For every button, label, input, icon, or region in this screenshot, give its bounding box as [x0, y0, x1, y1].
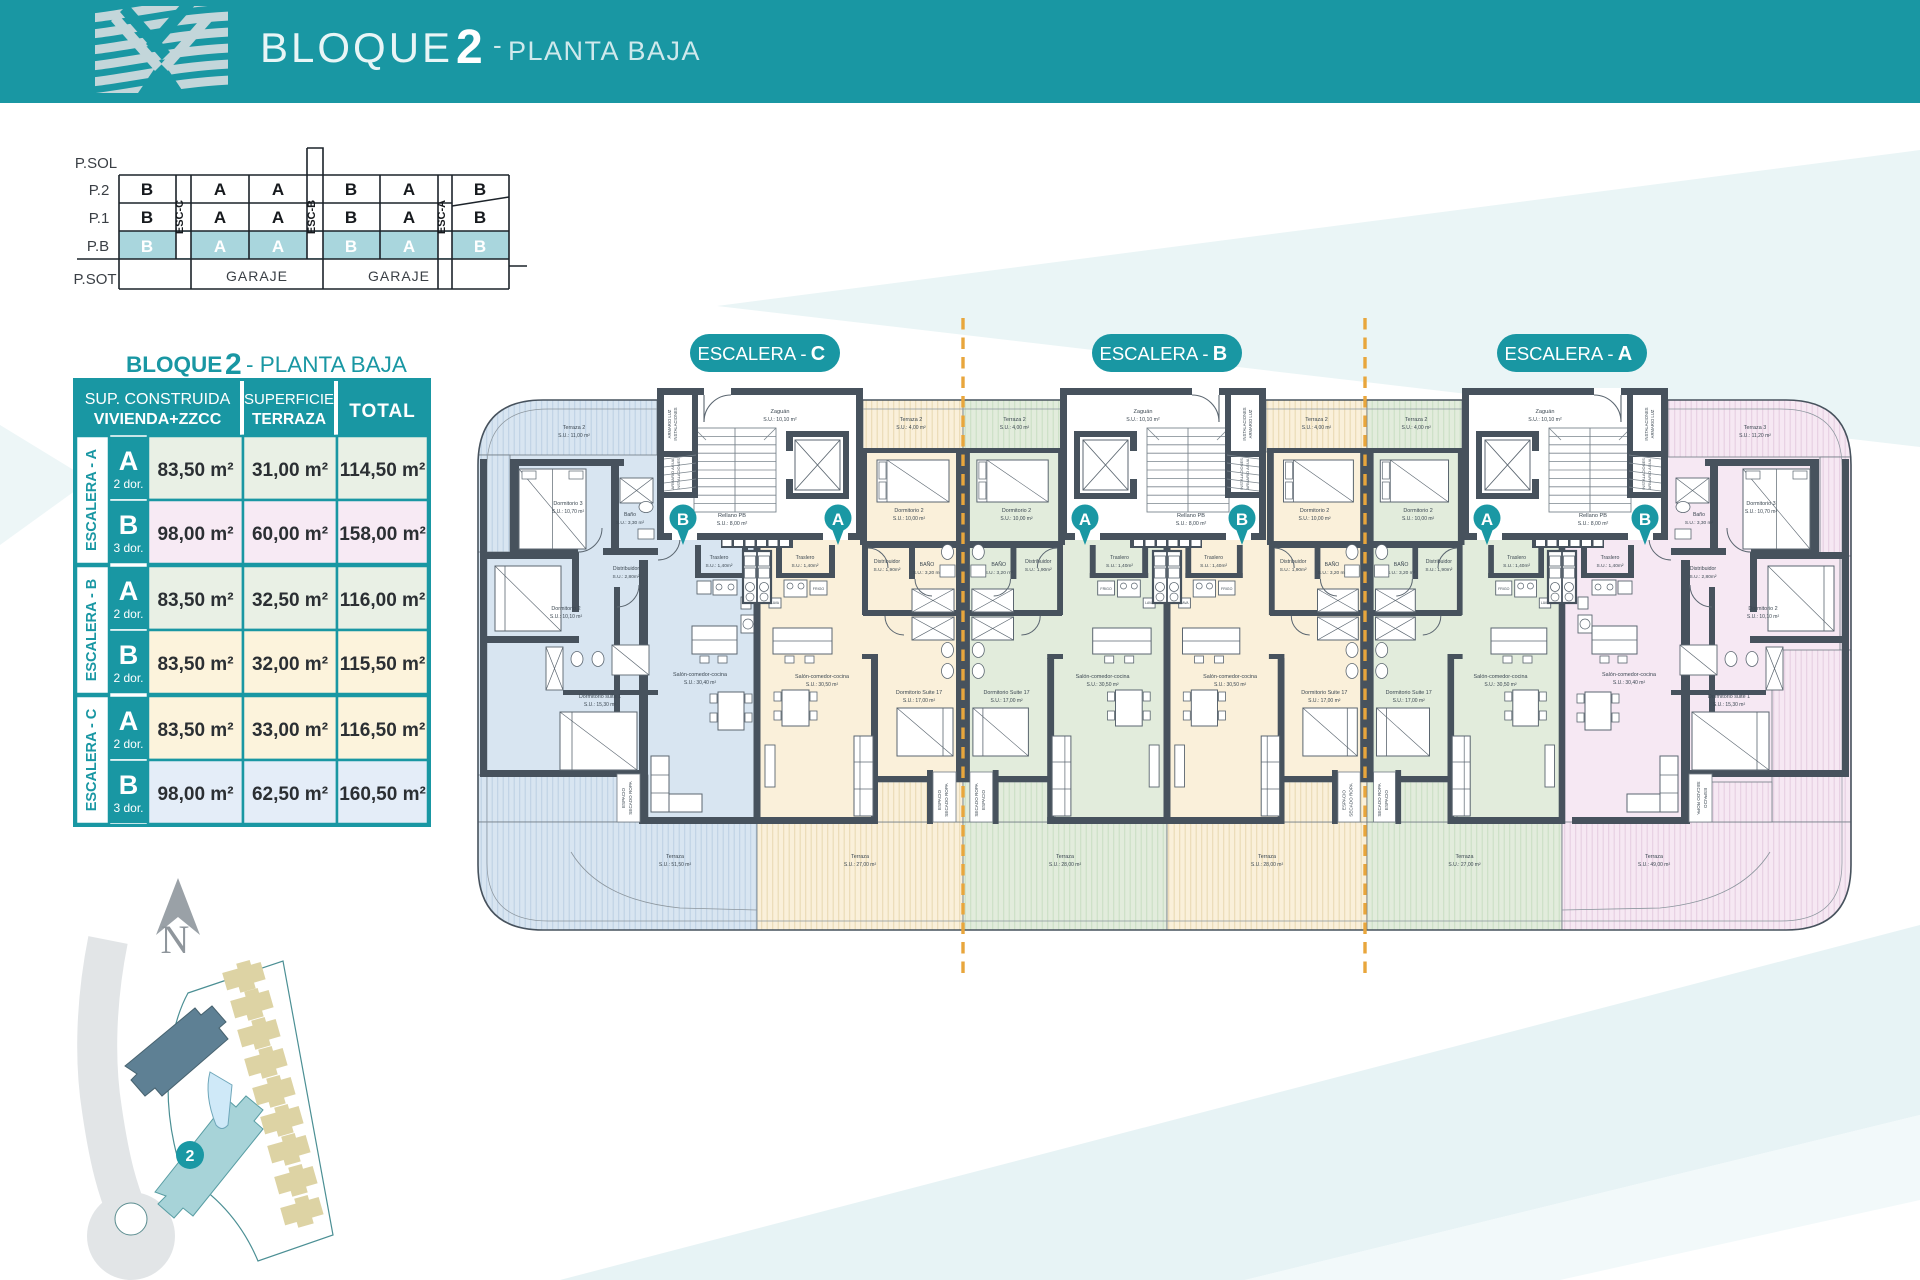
svg-text:A: A: [272, 237, 284, 256]
svg-text:S.U.: 3,20 m²: S.U.: 3,20 m²: [913, 570, 942, 576]
svg-text:A: A: [1079, 510, 1091, 529]
svg-text:PLANTA BAJA: PLANTA BAJA: [508, 36, 701, 66]
svg-text:114,50 m²: 114,50 m²: [340, 460, 426, 481]
svg-text:S.U.: 10,00 m²: S.U.: 10,00 m²: [1000, 516, 1033, 522]
svg-text:INSTALACIONES: INSTALACIONES: [1641, 458, 1646, 490]
svg-text:S.U.: 28,00 m²: S.U.: 28,00 m²: [1049, 862, 1082, 868]
svg-text:S.U.: 10,10 m²: S.U.: 10,10 m²: [1747, 614, 1780, 620]
svg-text:SECADO ROPA: SECADO ROPA: [1696, 781, 1701, 815]
svg-text:Dormitorio 2: Dormitorio 2: [551, 606, 580, 612]
svg-text:S.U.: 10,10 m²: S.U.: 10,10 m²: [1528, 417, 1562, 423]
svg-text:S.U.: 8,00 m²: S.U.: 8,00 m²: [717, 521, 748, 527]
svg-text:S.U.: 1,40m²: S.U.: 1,40m²: [706, 563, 733, 569]
svg-text:S.U.: 8,00 m²: S.U.: 8,00 m²: [1176, 521, 1207, 527]
svg-text:FRIGO: FRIGO: [1221, 587, 1233, 591]
svg-text:S.U.: 10,00 m²: S.U.: 10,00 m²: [893, 516, 926, 522]
svg-text:Dormitorio Suite 17: Dormitorio Suite 17: [1301, 690, 1347, 696]
svg-text:A: A: [119, 446, 139, 476]
svg-text:P.SOT: P.SOT: [73, 271, 116, 288]
svg-text:-: -: [493, 30, 502, 60]
svg-text:Dormitorio 3: Dormitorio 3: [1746, 501, 1775, 507]
svg-text:SECADO ROPA: SECADO ROPA: [628, 780, 633, 814]
svg-text:S.U.: 51,50 m²: S.U.: 51,50 m²: [659, 862, 692, 868]
svg-text:S.U.: 3,20 m²: S.U.: 3,20 m²: [1387, 570, 1416, 576]
svg-text:Terraza 2: Terraza 2: [1405, 417, 1427, 423]
svg-text:Traslero: Traslero: [1507, 555, 1526, 561]
svg-text:BAÑO: BAÑO: [991, 561, 1006, 568]
svg-text:ESPACIO: ESPACIO: [937, 790, 942, 811]
svg-text:S.U.: 2,80m²: S.U.: 2,80m²: [613, 574, 640, 580]
svg-text:B: B: [1236, 510, 1248, 529]
svg-text:FRIGO: FRIGO: [1100, 587, 1112, 591]
svg-text:Terraza 3: Terraza 3: [1744, 425, 1766, 431]
svg-text:83,50 m²: 83,50 m²: [157, 720, 233, 741]
svg-text:Salón-comedor-cocina: Salón-comedor-cocina: [1602, 672, 1656, 678]
svg-text:B: B: [345, 237, 357, 256]
svg-text:VIVIENDA+ZZCC: VIVIENDA+ZZCC: [94, 411, 222, 428]
svg-text:S.U.: 3,20 m²: S.U.: 3,20 m²: [1318, 570, 1347, 576]
svg-text:S.U.: 30,50 m²: S.U.: 30,50 m²: [1214, 682, 1247, 688]
svg-text:Salón-comedor-cocina: Salón-comedor-cocina: [1076, 674, 1130, 680]
svg-text:B: B: [474, 208, 486, 227]
svg-text:Zaguán: Zaguán: [1134, 409, 1153, 415]
svg-text:Traslero: Traslero: [1204, 555, 1223, 561]
svg-text:S.U.: 30,40 m²: S.U.: 30,40 m²: [684, 680, 717, 686]
svg-text:33,00 m²: 33,00 m²: [252, 720, 328, 741]
svg-text:ESPACIO: ESPACIO: [1342, 790, 1347, 811]
svg-text:A: A: [1618, 343, 1632, 365]
svg-text:INSTALACIONES: INSTALACIONES: [673, 407, 678, 440]
svg-text:S.U.: 4,00 m²: S.U.: 4,00 m²: [1000, 425, 1030, 431]
svg-text:P.1: P.1: [89, 210, 110, 227]
svg-text:Traslero: Traslero: [1110, 555, 1129, 561]
svg-text:ESCALERA -: ESCALERA -: [1100, 343, 1209, 364]
svg-text:160,50 m²: 160,50 m²: [339, 784, 426, 805]
svg-text:INSTALACIONES: INSTALACIONES: [1242, 407, 1247, 440]
svg-text:INSTALACIONES: INSTALACIONES: [1239, 458, 1244, 490]
svg-text:ESCALERA - C: ESCALERA - C: [84, 708, 100, 811]
svg-text:ESC-B: ESC-B: [306, 200, 318, 234]
svg-text:B: B: [1639, 510, 1651, 529]
svg-text:A: A: [832, 510, 844, 529]
svg-text:60,00 m²: 60,00 m²: [252, 524, 328, 545]
svg-text:62,50 m²: 62,50 m²: [252, 784, 328, 805]
svg-text:A: A: [403, 180, 415, 199]
svg-text:ARMARIO LUZ: ARMARIO LUZ: [1248, 409, 1253, 438]
svg-text:S.U.: 17,00 m²: S.U.: 17,00 m²: [990, 698, 1023, 704]
svg-text:S.U.: 10,10 m²: S.U.: 10,10 m²: [763, 417, 797, 423]
svg-text:S.U.: 11,00 m²: S.U.: 11,00 m²: [558, 433, 590, 439]
svg-text:LAVA: LAVA: [771, 601, 780, 605]
svg-text:S.U.: 15,30 m²: S.U.: 15,30 m²: [1713, 702, 1746, 708]
svg-text:2 dor.: 2 dor.: [113, 671, 143, 685]
svg-text:2: 2: [225, 348, 242, 381]
svg-text:ESCALERA - A: ESCALERA - A: [84, 448, 100, 551]
svg-text:A: A: [214, 180, 226, 199]
svg-text:ESC-A: ESC-A: [436, 200, 448, 234]
svg-text:B: B: [677, 510, 689, 529]
svg-text:P.B: P.B: [87, 238, 109, 255]
svg-text:Distribuidor: Distribuidor: [1690, 566, 1717, 572]
svg-text:Terraza: Terraza: [851, 854, 869, 860]
svg-text:S.U.: 30,50 m²: S.U.: 30,50 m²: [806, 682, 839, 688]
svg-text:INSTALACIONES: INSTALACIONES: [1644, 407, 1649, 440]
svg-text:Rellano PB: Rellano PB: [718, 513, 746, 519]
svg-text:Salón-comedor-cocina: Salón-comedor-cocina: [1474, 674, 1528, 680]
svg-text:83,50 m²: 83,50 m²: [157, 590, 233, 611]
svg-text:TERRAZA: TERRAZA: [252, 411, 326, 428]
svg-text:S.U.: 1,90m²: S.U.: 1,90m²: [874, 567, 901, 573]
svg-text:98,00 m²: 98,00 m²: [157, 784, 233, 805]
svg-text:Dormitorio 2: Dormitorio 2: [894, 508, 923, 514]
svg-text:S.U.: 3,30 m²: S.U.: 3,30 m²: [616, 520, 645, 526]
svg-text:83,50 m²: 83,50 m²: [157, 654, 233, 675]
svg-text:B: B: [141, 237, 153, 256]
svg-text:TOTAL: TOTAL: [349, 401, 416, 422]
svg-text:Zaguán: Zaguán: [771, 409, 790, 415]
svg-text:S.U.: 4,00 m²: S.U.: 4,00 m²: [1401, 425, 1431, 431]
svg-text:S.U.: 1,40m²: S.U.: 1,40m²: [1200, 563, 1227, 569]
svg-text:ESPACIO: ESPACIO: [1703, 788, 1708, 809]
svg-text:Traslero: Traslero: [710, 555, 729, 561]
svg-text:S.U.: 49,00 m²: S.U.: 49,00 m²: [1638, 862, 1671, 868]
svg-text:2: 2: [186, 1148, 195, 1165]
svg-text:3 dor.: 3 dor.: [113, 541, 143, 555]
svg-text:S.U.: 27,00 m²: S.U.: 27,00 m²: [844, 862, 877, 868]
svg-text:Terraza: Terraza: [1645, 854, 1663, 860]
svg-text:ESC-C: ESC-C: [174, 200, 186, 234]
svg-text:Traslero: Traslero: [1601, 555, 1620, 561]
svg-text:32,50 m²: 32,50 m²: [252, 590, 328, 611]
svg-text:S.U.: 1,40m²: S.U.: 1,40m²: [1106, 563, 1133, 569]
svg-text:B: B: [119, 510, 139, 540]
svg-text:S.U.: 1,40m²: S.U.: 1,40m²: [792, 563, 819, 569]
svg-text:B: B: [345, 208, 357, 227]
svg-text:Baño: Baño: [624, 512, 636, 518]
svg-text:Baño: Baño: [1693, 512, 1705, 518]
svg-text:A: A: [214, 208, 226, 227]
svg-text:116,00 m²: 116,00 m²: [340, 590, 426, 611]
svg-text:A: A: [403, 237, 415, 256]
svg-text:S.U.: 1,90m²: S.U.: 1,90m²: [1280, 567, 1307, 573]
svg-text:Terraza 2: Terraza 2: [900, 417, 922, 423]
svg-text:2 dor.: 2 dor.: [113, 737, 143, 751]
svg-text:BLOQUE: BLOQUE: [260, 24, 453, 71]
svg-text:A: A: [214, 237, 226, 256]
svg-text:S.U.: 30,40 m²: S.U.: 30,40 m²: [1613, 680, 1646, 686]
svg-text:ESPACIO: ESPACIO: [1384, 790, 1389, 811]
svg-text:Dormitorio Suite 17: Dormitorio Suite 17: [984, 690, 1030, 696]
svg-text:Terraza: Terraza: [666, 854, 684, 860]
svg-text:ESCALERA -: ESCALERA -: [698, 343, 807, 364]
svg-text:S.U.: 3,20 m²: S.U.: 3,20 m²: [985, 570, 1014, 576]
svg-text:- PLANTA BAJA: - PLANTA BAJA: [246, 352, 407, 377]
svg-text:S.U.: 1,90m²: S.U.: 1,90m²: [1025, 567, 1052, 573]
svg-text:S.U.: 17,00 m²: S.U.: 17,00 m²: [903, 698, 936, 704]
svg-text:A: A: [1481, 510, 1493, 529]
svg-text:2 dor.: 2 dor.: [113, 477, 143, 491]
svg-text:GARAJE: GARAJE: [368, 268, 430, 284]
svg-text:ARMARIO LUZ: ARMARIO LUZ: [667, 409, 672, 438]
svg-text:SUPERFICIE: SUPERFICIE: [244, 391, 334, 408]
svg-text:83,50 m²: 83,50 m²: [157, 460, 233, 481]
svg-text:Distribuidor: Distribuidor: [613, 566, 640, 572]
svg-text:Dormitorio 2: Dormitorio 2: [1002, 508, 1031, 514]
svg-text:3 dor.: 3 dor.: [113, 801, 143, 815]
svg-text:S.U.: 2,80m²: S.U.: 2,80m²: [1690, 574, 1717, 580]
svg-text:A: A: [403, 208, 415, 227]
svg-text:Dormitorio Suite 17: Dormitorio Suite 17: [1386, 690, 1432, 696]
svg-text:A: A: [119, 706, 139, 736]
svg-text:SECADO ROPA: SECADO ROPA: [944, 782, 949, 816]
svg-text:ESPACIO: ESPACIO: [981, 790, 986, 811]
svg-text:Dormitorio 3: Dormitorio 3: [553, 501, 582, 507]
svg-text:ARMARIO LUZ: ARMARIO LUZ: [1650, 409, 1655, 438]
svg-text:Salón-comedor-cocina: Salón-comedor-cocina: [795, 674, 849, 680]
svg-text:Dormitorio 2: Dormitorio 2: [1403, 508, 1432, 514]
svg-text:A: A: [272, 208, 284, 227]
svg-text:B: B: [474, 180, 486, 199]
svg-text:Traslero: Traslero: [796, 555, 815, 561]
svg-text:B: B: [1213, 343, 1227, 365]
svg-text:BAÑO: BAÑO: [920, 561, 935, 568]
svg-text:S.U.: 4,00 m²: S.U.: 4,00 m²: [1302, 425, 1332, 431]
svg-text:S.U.: 10,10 m²: S.U.: 10,10 m²: [1126, 417, 1160, 423]
svg-text:B: B: [119, 640, 139, 670]
svg-text:158,00 m²: 158,00 m²: [339, 524, 426, 545]
svg-text:2 dor.: 2 dor.: [113, 607, 143, 621]
svg-text:S.U.: 17,00 m²: S.U.: 17,00 m²: [1393, 698, 1426, 704]
svg-text:ESCALERA -: ESCALERA -: [1505, 343, 1614, 364]
svg-text:FRIGO: FRIGO: [1498, 587, 1510, 591]
svg-text:N: N: [161, 917, 190, 962]
svg-text:BLOQUE: BLOQUE: [126, 352, 222, 377]
svg-text:FRIGO: FRIGO: [813, 587, 825, 591]
svg-text:Dormitorio Suite 17: Dormitorio Suite 17: [896, 690, 942, 696]
svg-text:S.U.: 11,20 m²: S.U.: 11,20 m²: [1739, 433, 1771, 439]
svg-text:S.U.: 28,00 m²: S.U.: 28,00 m²: [1251, 862, 1284, 868]
svg-text:A: A: [119, 576, 139, 606]
svg-text:C: C: [811, 343, 825, 365]
svg-text:Rellano PB: Rellano PB: [1579, 513, 1607, 519]
svg-text:31,00 m²: 31,00 m²: [252, 460, 328, 481]
svg-text:S.U.: 1,90m²: S.U.: 1,90m²: [1425, 567, 1452, 573]
svg-text:S.U.: 15,30 m²: S.U.: 15,30 m²: [584, 702, 617, 708]
svg-text:S.U.: 10,00 m²: S.U.: 10,00 m²: [1298, 516, 1331, 522]
svg-text:S.U.: 27,00 m²: S.U.: 27,00 m²: [1448, 862, 1481, 868]
svg-text:B: B: [141, 180, 153, 199]
svg-text:GARAJE: GARAJE: [226, 268, 288, 284]
svg-text:SECADO ROPA: SECADO ROPA: [974, 782, 979, 816]
svg-text:Rellano PB: Rellano PB: [1177, 513, 1205, 519]
svg-text:2: 2: [456, 21, 483, 74]
svg-text:INSTALACIONES: INSTALACIONES: [676, 458, 681, 490]
svg-text:Terraza 2: Terraza 2: [1003, 417, 1025, 423]
svg-text:Terraza: Terraza: [1258, 854, 1276, 860]
svg-text:S.U.: 10,70 m²: S.U.: 10,70 m²: [552, 509, 585, 515]
svg-text:116,50 m²: 116,50 m²: [340, 720, 426, 741]
svg-text:SECADO ROPA: SECADO ROPA: [1348, 782, 1353, 816]
svg-text:S.U.: 10,00 m²: S.U.: 10,00 m²: [1402, 516, 1435, 522]
svg-text:S.U.: 8,00 m²: S.U.: 8,00 m²: [1578, 521, 1609, 527]
svg-text:S.U.: 3,30 m²: S.U.: 3,30 m²: [1685, 520, 1714, 526]
svg-text:BAÑO: BAÑO: [1394, 561, 1409, 568]
svg-text:B: B: [345, 180, 357, 199]
svg-text:B: B: [474, 237, 486, 256]
svg-text:P.2: P.2: [89, 182, 110, 199]
svg-text:S.U.: 4,00 m²: S.U.: 4,00 m²: [896, 425, 926, 431]
svg-text:B: B: [141, 208, 153, 227]
svg-text:ESCALERA - B: ESCALERA - B: [84, 579, 100, 682]
svg-text:ESPACIO: ESPACIO: [621, 788, 626, 809]
svg-text:SUP. CONSTRUIDA: SUP. CONSTRUIDA: [85, 391, 231, 408]
svg-text:Terraza: Terraza: [1456, 854, 1474, 860]
svg-text:S.U.: 30,50 m²: S.U.: 30,50 m²: [1484, 682, 1517, 688]
svg-text:Dormitorio 2: Dormitorio 2: [1300, 508, 1329, 514]
svg-text:S.U.: 1,40m²: S.U.: 1,40m²: [1597, 563, 1624, 569]
svg-text:S.U.: 17,00 m²: S.U.: 17,00 m²: [1308, 698, 1341, 704]
svg-text:Salón-comedor-cocina: Salón-comedor-cocina: [673, 672, 727, 678]
svg-text:Zaguán: Zaguán: [1536, 409, 1555, 415]
svg-text:S.U.: 10,10 m²: S.U.: 10,10 m²: [550, 614, 583, 620]
svg-text:A: A: [272, 180, 284, 199]
svg-text:Dormitorio suite 1: Dormitorio suite 1: [1708, 694, 1750, 700]
svg-text:B: B: [119, 770, 139, 800]
svg-text:115,50 m²: 115,50 m²: [340, 654, 426, 675]
svg-text:S.U.: 1,40m²: S.U.: 1,40m²: [1503, 563, 1530, 569]
svg-text:BAÑO: BAÑO: [1325, 561, 1340, 568]
svg-text:Terraza: Terraza: [1056, 854, 1074, 860]
svg-text:32,00 m²: 32,00 m²: [252, 654, 328, 675]
svg-text:S.U.: 10,70 m²: S.U.: 10,70 m²: [1745, 509, 1778, 515]
svg-text:S.U.: 30,50 m²: S.U.: 30,50 m²: [1086, 682, 1119, 688]
svg-text:SECADO ROPA: SECADO ROPA: [1377, 782, 1382, 816]
svg-text:Dormitorio suite 1: Dormitorio suite 1: [579, 694, 621, 700]
svg-text:P.SOL: P.SOL: [75, 155, 117, 172]
svg-text:Dormitorio 2: Dormitorio 2: [1748, 606, 1777, 612]
svg-text:Terraza 2: Terraza 2: [1305, 417, 1327, 423]
svg-text:Terraza 2: Terraza 2: [563, 425, 585, 431]
svg-text:Salón-comedor-cocina: Salón-comedor-cocina: [1203, 674, 1257, 680]
svg-text:98,00 m²: 98,00 m²: [157, 524, 233, 545]
